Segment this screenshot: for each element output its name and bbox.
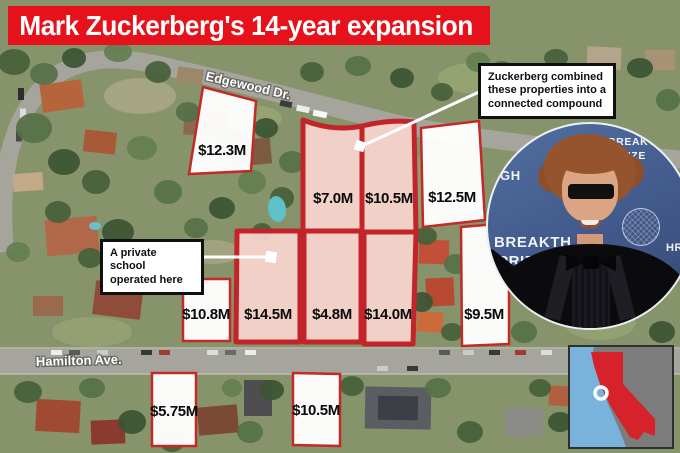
- parcel-14-5m: [236, 231, 300, 342]
- callout-school: A private school operated here: [100, 239, 204, 295]
- zuckerberg-photo: GH BREAKTH PRIZE BREAKTHRO PRIZE HROU: [486, 122, 680, 330]
- breakthrough-medallion-icon: [622, 208, 660, 246]
- parcel-12-5m: [421, 121, 485, 227]
- price-label: $7.0M: [313, 190, 353, 207]
- price-label: $10.5M: [365, 190, 413, 207]
- hair-fringe: [552, 140, 628, 174]
- backdrop-text: HROU: [666, 242, 680, 254]
- price-label: $12.5M: [428, 189, 476, 206]
- page-title: Mark Zuckerberg's 14-year expansion: [8, 10, 473, 42]
- parcel-7-0m: [303, 120, 362, 233]
- price-label: $5.75M: [150, 403, 198, 420]
- swimming-pool: [89, 222, 101, 230]
- sunglasses-icon: [568, 184, 614, 199]
- smile-teeth: [581, 220, 599, 225]
- inset-svg: [570, 347, 672, 447]
- parcel-4-8m: [304, 231, 361, 342]
- title-banner: Mark Zuckerberg's 14-year expansion: [8, 6, 490, 45]
- parcel-10-5m-north: [362, 121, 416, 233]
- tuxedo-shirt: [572, 262, 610, 330]
- property-marker: [265, 251, 277, 263]
- price-label: $12.3M: [198, 142, 246, 159]
- parcel-14-0m: [364, 232, 416, 344]
- price-label: $4.8M: [312, 306, 352, 323]
- callout-compound: Zuckerberg combined these properties int…: [478, 63, 616, 119]
- price-label: $14.5M: [244, 306, 292, 323]
- price-label: $10.5M: [292, 402, 340, 419]
- backdrop-text: GH: [500, 168, 521, 183]
- bow-tie-knot: [583, 256, 599, 269]
- price-label: $14.0M: [364, 306, 412, 323]
- property-expansion-infographic: Edgewood Dr. Hamilton Ave. $12.3M $12.5M…: [0, 0, 680, 453]
- street-label-hamilton: Hamilton Ave.: [36, 352, 122, 369]
- california-inset-map: [568, 345, 674, 449]
- price-label: $10.8M: [182, 306, 230, 323]
